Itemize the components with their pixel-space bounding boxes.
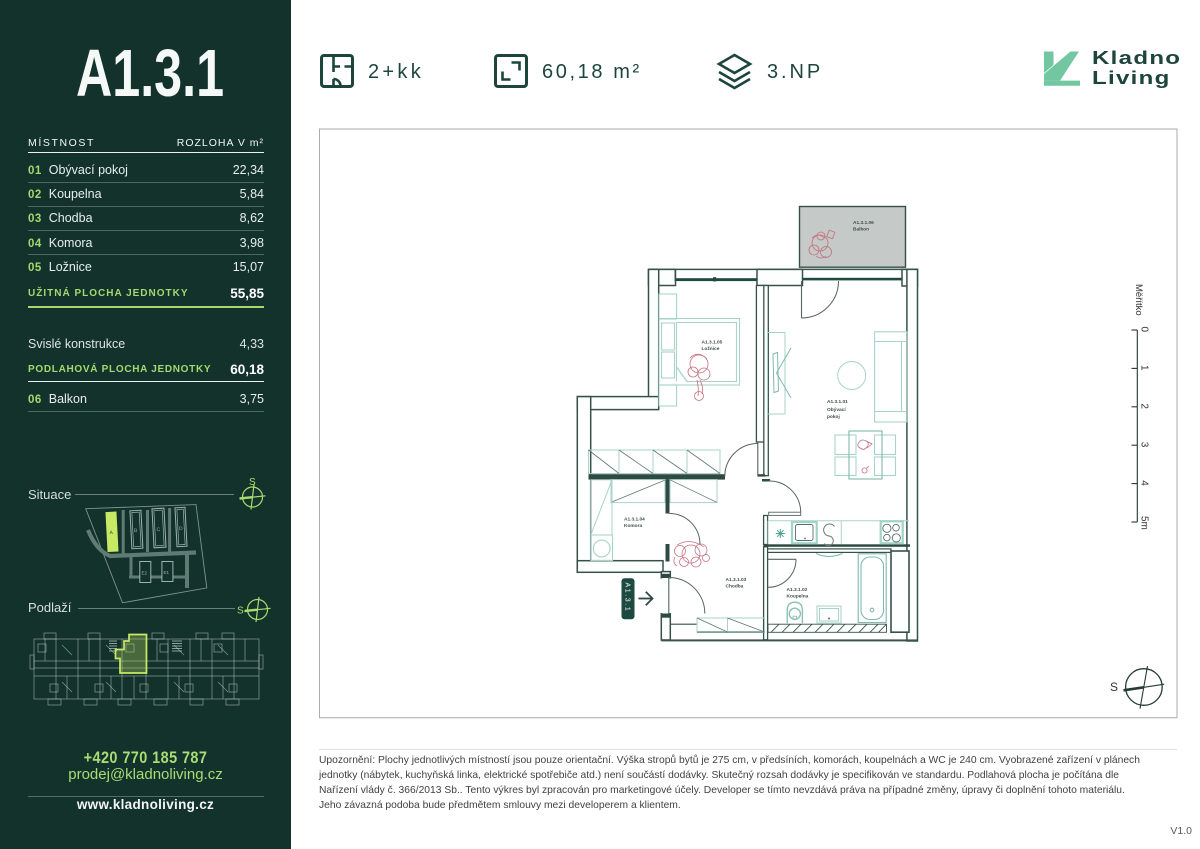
svg-text:Balkon: Balkon [853,227,869,233]
svg-text:C: C [156,527,160,533]
svg-text:E2: E2 [142,571,148,576]
svg-text:Chodba: Chodba [726,584,744,590]
svg-text:2: 2 [1139,403,1150,409]
svg-text:A1.3.1: A1.3.1 [623,583,630,613]
svg-text:5m: 5m [1139,516,1150,530]
svg-text:D: D [179,526,183,532]
svg-text:3: 3 [1139,442,1150,448]
svg-text:A1.3.1.04: A1.3.1.04 [624,517,645,523]
svg-text:0: 0 [1139,327,1150,333]
svg-text:A1.3.1.05: A1.3.1.05 [702,340,723,346]
svg-text:Komora: Komora [624,523,642,529]
svg-text:S: S [237,606,244,617]
svg-text:S: S [1110,680,1118,694]
svg-text:A1.3.1.02: A1.3.1.02 [787,587,808,593]
svg-text:4: 4 [1139,480,1150,486]
svg-text:pokoj: pokoj [827,414,840,420]
svg-text:1: 1 [1139,365,1150,371]
svg-text:S: S [249,477,256,488]
svg-text:E1: E1 [164,570,170,575]
svg-text:Koupelna: Koupelna [787,594,809,600]
svg-text:Obývací: Obývací [827,407,846,413]
svg-text:A1.3.1.01: A1.3.1.01 [827,399,848,405]
svg-text:B: B [134,528,138,534]
svg-text:A1.3.1.03: A1.3.1.03 [726,577,747,583]
svg-text:Ložnice: Ložnice [702,346,720,352]
svg-text:A1.3.1.06: A1.3.1.06 [853,220,874,226]
svg-text:Měřítko: Měřítko [1133,284,1144,316]
